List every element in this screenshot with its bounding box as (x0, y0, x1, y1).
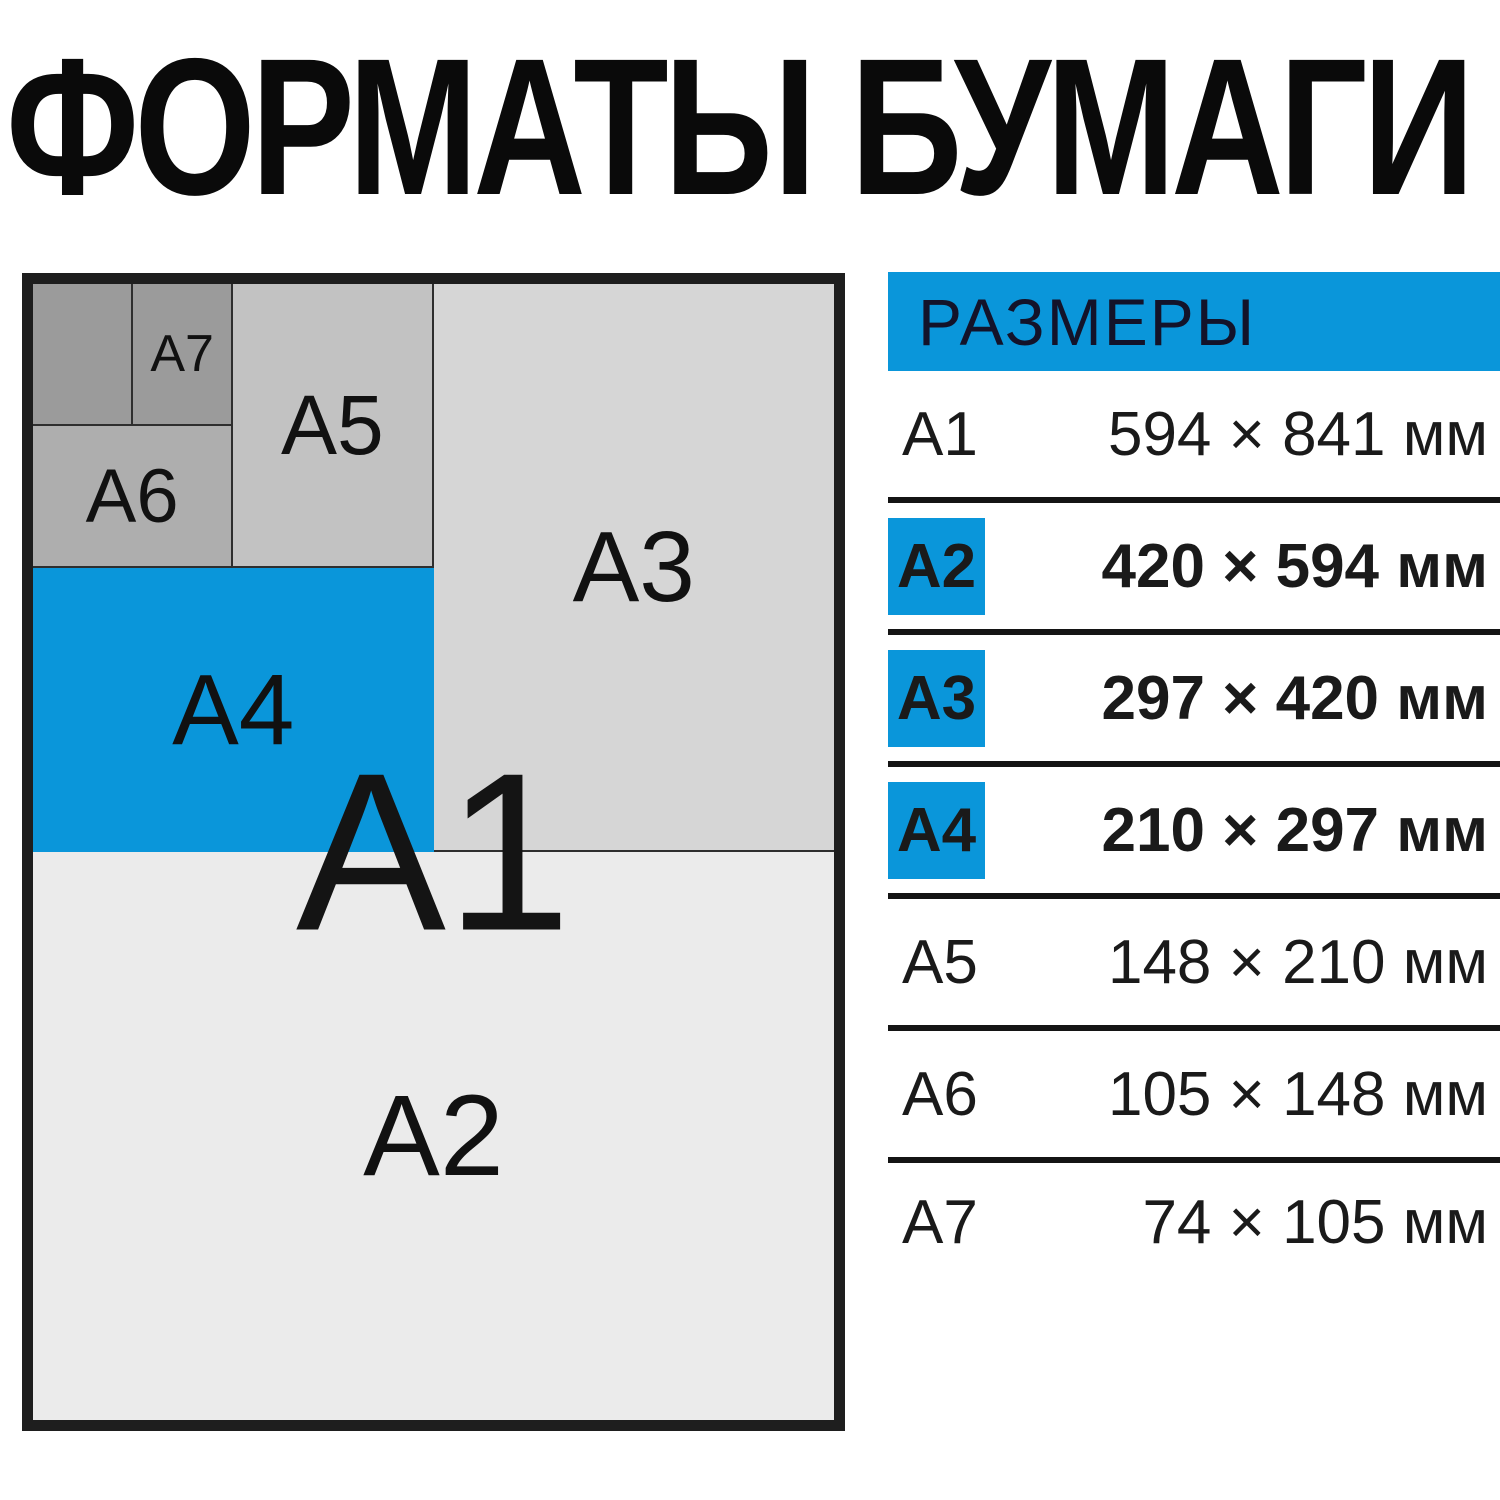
diagram-region-a8-unlabeled (33, 284, 133, 426)
size-cell: 420 × 594 мм (1101, 531, 1500, 602)
size-cell: 74 × 105 мм (1142, 1187, 1500, 1258)
format-cell: A6 (888, 1059, 978, 1130)
table-row-a7: A7 74 × 105 мм (888, 1163, 1500, 1281)
size-cell: 210 × 297 мм (1101, 795, 1500, 866)
table-row-a1: A1 594 × 841 мм (888, 371, 1500, 503)
table-row-a5: A5 148 × 210 мм (888, 899, 1500, 1031)
table-row-a2: A2 420 × 594 мм (888, 503, 1500, 635)
diagram-region-a5: A5 (233, 284, 433, 568)
size-cell: 297 × 420 мм (1101, 663, 1500, 734)
table-header: РАЗМЕРЫ (888, 272, 1500, 371)
region-label-a5: A5 (281, 377, 384, 474)
format-cell-highlighted: A3 (888, 650, 985, 747)
format-cell: A5 (888, 927, 978, 998)
table-row-a6: A6 105 × 148 мм (888, 1031, 1500, 1163)
region-label-a4: A4 (172, 653, 294, 768)
size-cell: 105 × 148 мм (1108, 1059, 1500, 1130)
page-title: ФОРМАТЫ БУМАГИ (6, 30, 1470, 225)
table-header-label: РАЗМЕРЫ (918, 284, 1256, 360)
size-cell: 594 × 841 мм (1108, 399, 1500, 470)
region-label-a7: A7 (150, 324, 214, 384)
format-cell-highlighted: A2 (888, 518, 985, 615)
sizes-table: РАЗМЕРЫ A1 594 × 841 мм A2 420 × 594 мм … (888, 272, 1500, 1281)
paper-size-diagram: A2 A3 A4 A5 A6 A7 A1 (22, 273, 845, 1431)
region-label-a3: A3 (573, 510, 695, 625)
diagram-region-a7: A7 (133, 284, 233, 426)
region-label-a1: A1 (296, 740, 571, 965)
diagram-region-a6: A6 (33, 426, 233, 568)
table-row-a4: A4 210 × 297 мм (888, 767, 1500, 899)
format-cell: A7 (888, 1187, 978, 1258)
table-row-a3: A3 297 × 420 мм (888, 635, 1500, 767)
format-cell-highlighted: A4 (888, 782, 985, 879)
format-cell: A1 (888, 399, 978, 470)
region-label-a2: A2 (363, 1070, 504, 1202)
region-label-a6: A6 (86, 453, 179, 540)
size-cell: 148 × 210 мм (1108, 927, 1500, 998)
